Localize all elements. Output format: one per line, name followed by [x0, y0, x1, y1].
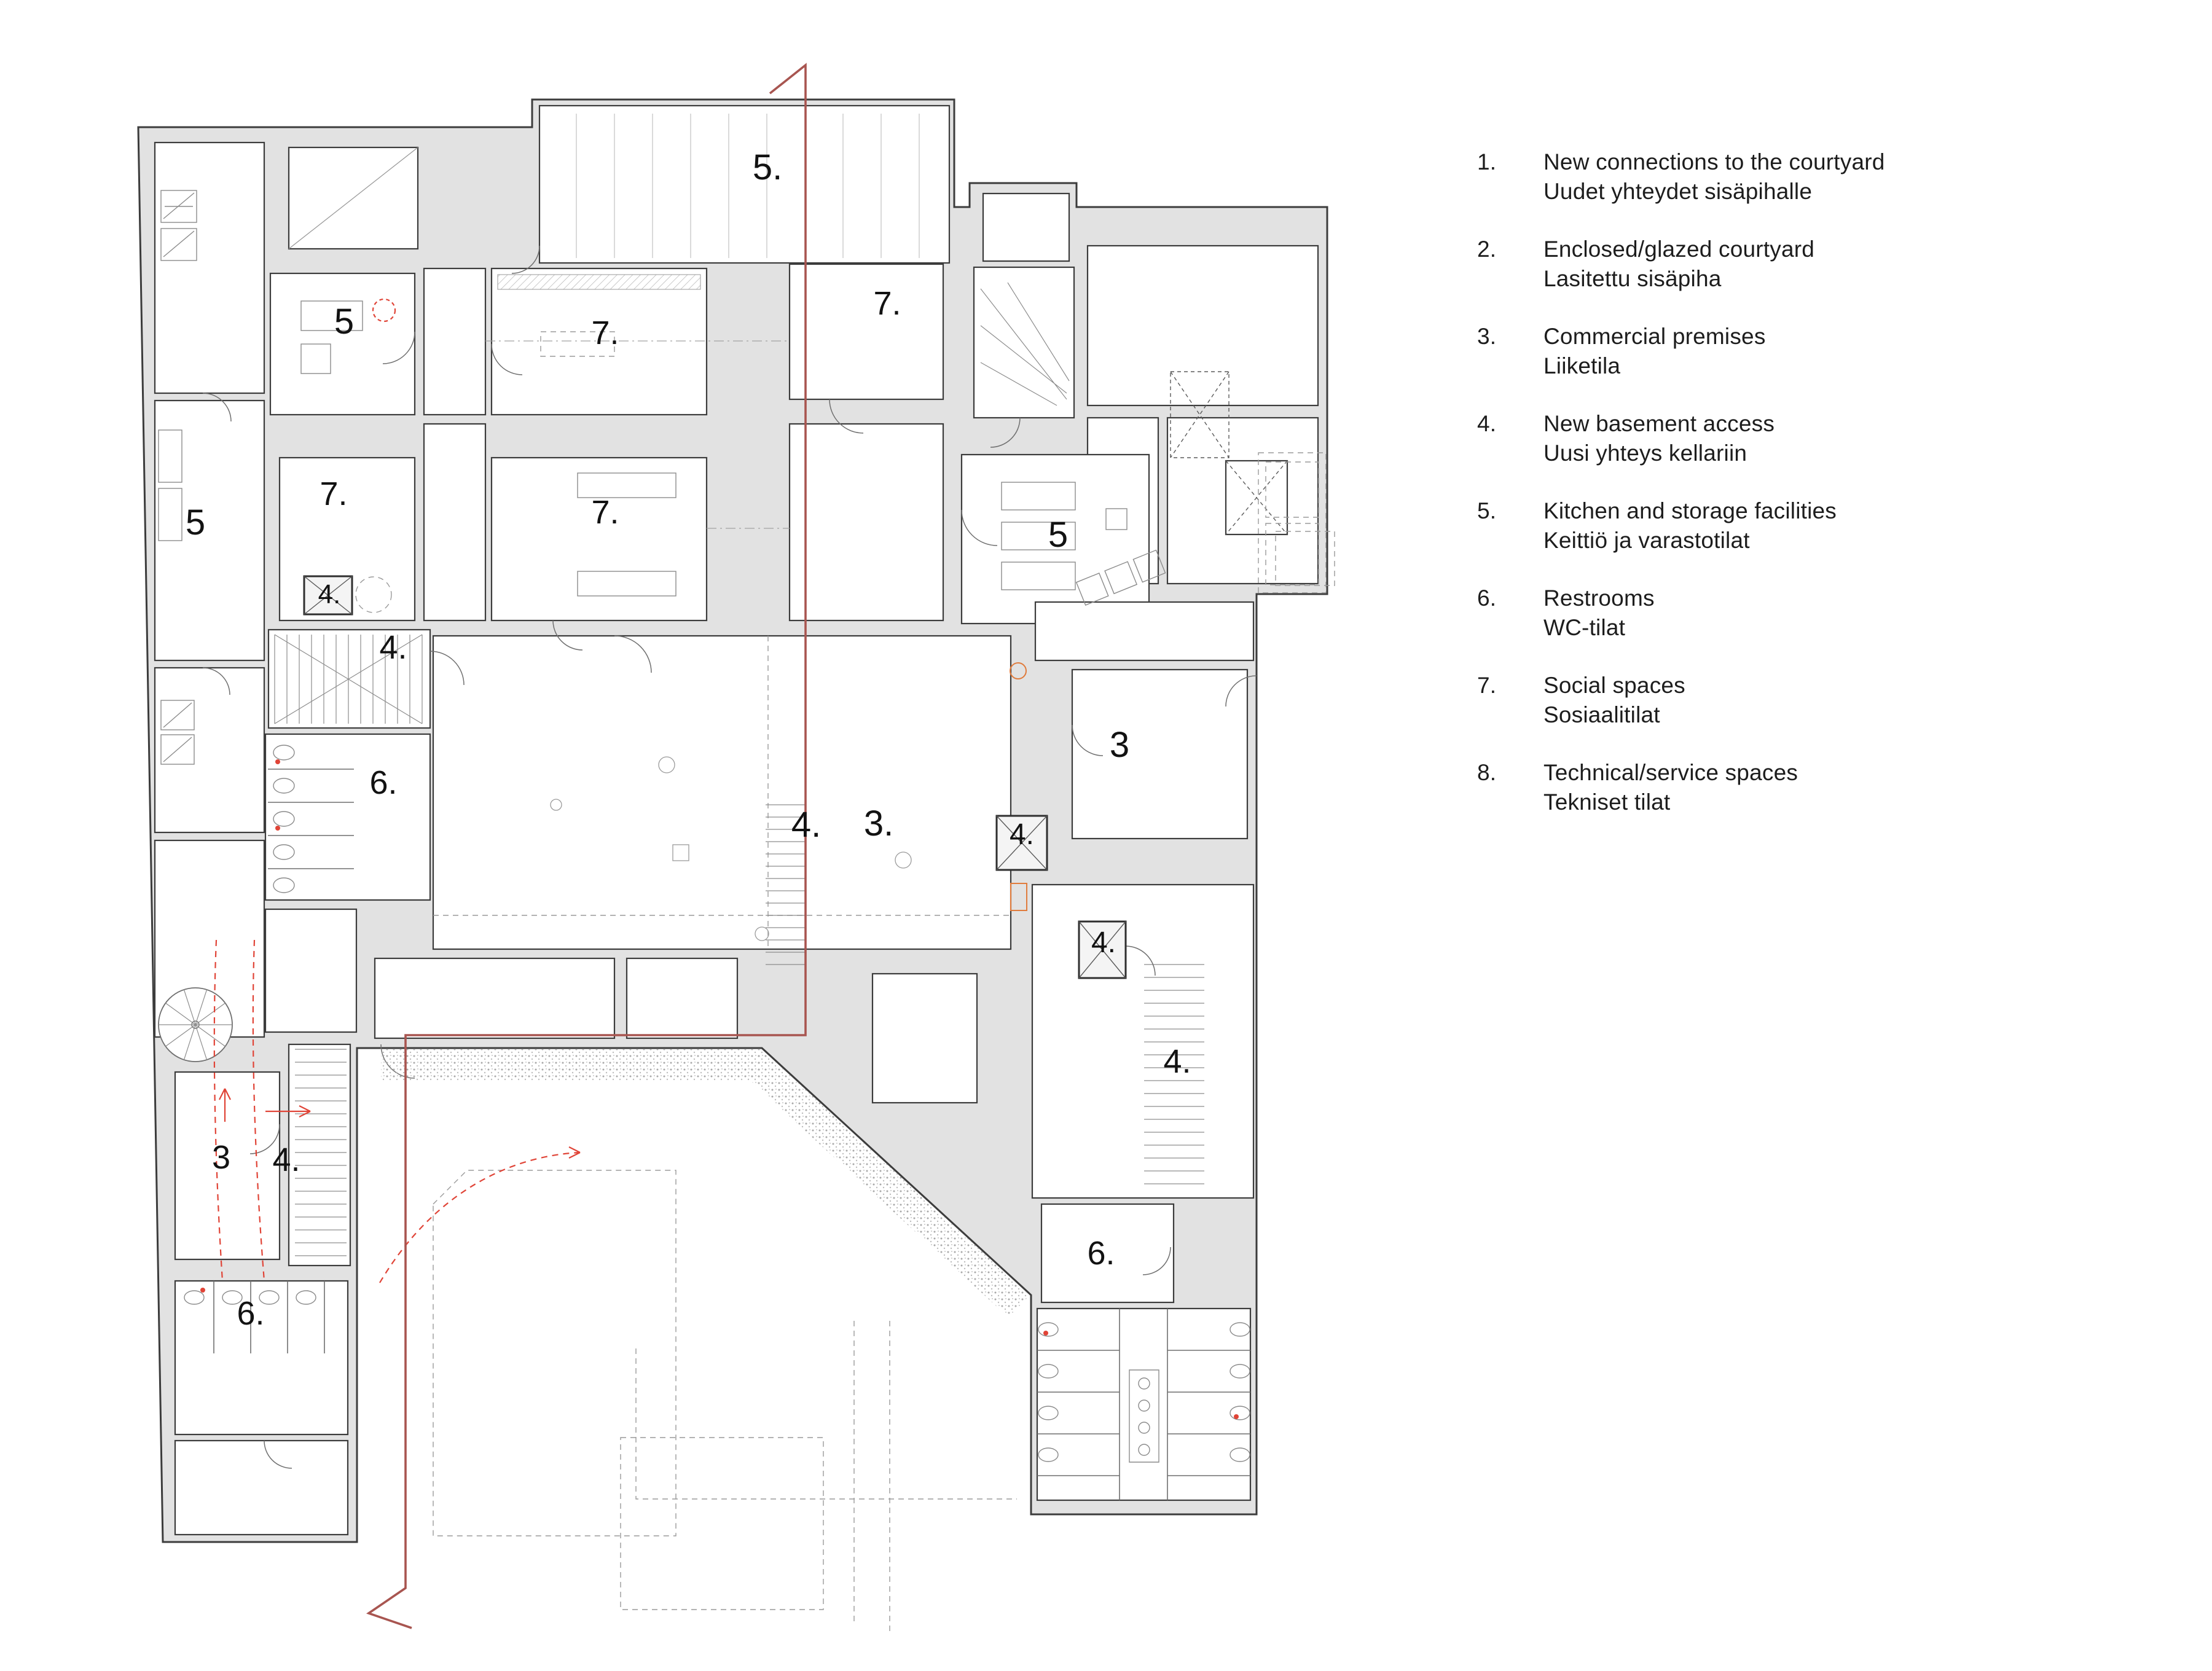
room-label: 7. — [591, 315, 619, 351]
legend-item-label-en: Enclosed/glazed courtyard — [1543, 235, 2128, 264]
legend-item-label-en: New connections to the courtyard — [1543, 147, 2128, 177]
toilet-icon — [1230, 1448, 1250, 1462]
legend-item-number: 4. — [1477, 409, 1543, 468]
legend-item-number: 1. — [1477, 147, 1543, 206]
room-label: 3 — [212, 1139, 230, 1176]
toilet-icon — [273, 745, 294, 760]
legend-item: 1.New connections to the courtyardUudet … — [1477, 147, 2128, 206]
legend-item-label-fi: Keittiö ja varastotilat — [1543, 526, 2128, 555]
toilet-icon — [296, 1291, 316, 1304]
room-label: 4. — [791, 805, 821, 845]
toilet-icon — [1038, 1364, 1058, 1378]
room-label: 4. — [1163, 1043, 1191, 1080]
legend-item: 4.New basement accessUusi yhteys kellari… — [1477, 409, 2128, 468]
red-fixture-mark — [275, 759, 280, 764]
room-label: 6. — [369, 764, 397, 801]
legend-item-label-fi: Uusi yhteys kellariin — [1543, 439, 2128, 468]
room-label: 3. — [864, 804, 893, 843]
red-fixture-mark — [200, 1288, 205, 1293]
legend-item: 7.Social spacesSosiaalitilat — [1477, 671, 2128, 730]
legend-item-number: 5. — [1477, 496, 1543, 555]
red-fixture-mark — [1234, 1414, 1239, 1419]
toilet-icon — [1230, 1406, 1250, 1420]
room-label: 6. — [237, 1295, 264, 1332]
toilet-icon — [1038, 1448, 1058, 1462]
red-fixture-mark — [275, 826, 280, 831]
room-label: 6. — [1087, 1235, 1115, 1272]
toilet-icon — [273, 845, 294, 859]
page: { "title": "Basement floor plan with spa… — [0, 0, 2212, 1671]
legend: 1.New connections to the courtyardUudet … — [1477, 147, 2128, 845]
room-label: 3 — [1110, 725, 1129, 765]
toilet-icon — [273, 778, 294, 793]
room-label: 5. — [753, 147, 782, 187]
legend-item-label-en: Kitchen and storage facilities — [1543, 496, 2128, 526]
legend-item-label-en: Restrooms — [1543, 584, 2128, 613]
toilet-icon — [1230, 1323, 1250, 1336]
legend-item-number: 6. — [1477, 584, 1543, 643]
legend-item: 3.Commercial premisesLiiketila — [1477, 322, 2128, 381]
legend-item-number: 7. — [1477, 671, 1543, 730]
room-label: 7. — [320, 475, 347, 512]
toilet-icon — [273, 878, 294, 893]
legend-item-label-fi: Tekniset tilat — [1543, 788, 2128, 817]
room-label: 4. — [1010, 818, 1034, 851]
legend-item-label-en: Technical/service spaces — [1543, 758, 2128, 788]
room-label: 7. — [591, 494, 619, 531]
red-fixture-mark — [1043, 1331, 1048, 1336]
legend-item-label-fi: Lasitettu sisäpiha — [1543, 264, 2128, 294]
legend-item-label-en: Commercial premises — [1543, 322, 2128, 351]
room-label: 4. — [272, 1141, 300, 1178]
toilet-icon — [1038, 1406, 1058, 1420]
room-label: 7. — [873, 285, 901, 322]
legend-item-label-fi: Uudet yhteydet sisäpihalle — [1543, 177, 2128, 206]
legend-item-number: 8. — [1477, 758, 1543, 817]
toilet-icon — [1038, 1323, 1058, 1336]
room-label: 5 — [1048, 515, 1068, 555]
legend-item: 5.Kitchen and storage facilitiesKeittiö … — [1477, 496, 2128, 555]
legend-item: 6.RestroomsWC-tilat — [1477, 584, 2128, 643]
toilet-icon — [184, 1291, 204, 1304]
legend-item-label-en: New basement access — [1543, 409, 2128, 439]
legend-item: 2.Enclosed/glazed courtyardLasitettu sis… — [1477, 235, 2128, 294]
legend-item-label-en: Social spaces — [1543, 671, 2128, 700]
legend-item-number: 3. — [1477, 322, 1543, 381]
room-label: 4. — [1091, 926, 1116, 959]
toilet-icon — [1230, 1364, 1250, 1378]
legend-item: 8.Technical/service spacesTekniset tilat — [1477, 758, 2128, 817]
legend-item-label-fi: Sosiaalitilat — [1543, 700, 2128, 730]
room-label: 4. — [379, 629, 407, 666]
room-label: 5 — [334, 302, 354, 342]
room-label: 5 — [186, 503, 205, 542]
room-label: 4. — [318, 579, 341, 609]
legend-item-number: 2. — [1477, 235, 1543, 294]
legend-item-label-fi: WC-tilat — [1543, 613, 2128, 643]
toilet-icon — [273, 812, 294, 826]
legend-item-label-fi: Liiketila — [1543, 351, 2128, 381]
